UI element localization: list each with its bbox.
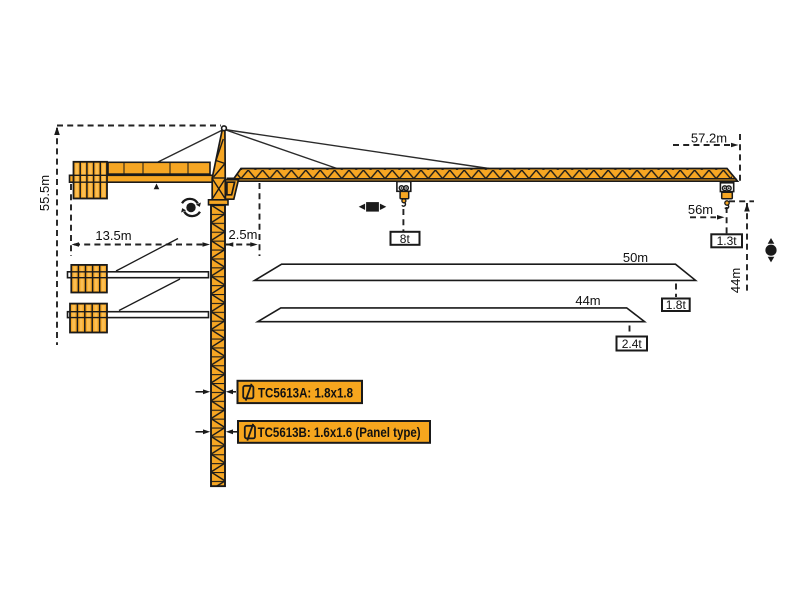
svg-text:2.4t: 2.4t <box>622 337 643 351</box>
svg-text:55.5m: 55.5m <box>37 175 52 211</box>
svg-text:8t: 8t <box>400 232 411 246</box>
svg-text:13.5m: 13.5m <box>95 228 131 243</box>
svg-text:TC5613B: 1.6x1.6 (Panel type: TC5613B: 1.6x1.6 (Panel type) <box>258 424 421 440</box>
svg-text:44m: 44m <box>728 268 743 293</box>
svg-text:TC5613A: 1.8x1.8: TC5613A: 1.8x1.8 <box>258 384 353 400</box>
svg-text:44m: 44m <box>575 293 600 308</box>
svg-text:1.3t: 1.3t <box>717 234 738 248</box>
svg-text:1.8t: 1.8t <box>666 298 687 312</box>
svg-text:50m: 50m <box>623 250 648 265</box>
svg-text:2.5m: 2.5m <box>229 227 258 242</box>
svg-text:57.2m: 57.2m <box>691 131 727 146</box>
svg-text:56m: 56m <box>688 202 713 217</box>
